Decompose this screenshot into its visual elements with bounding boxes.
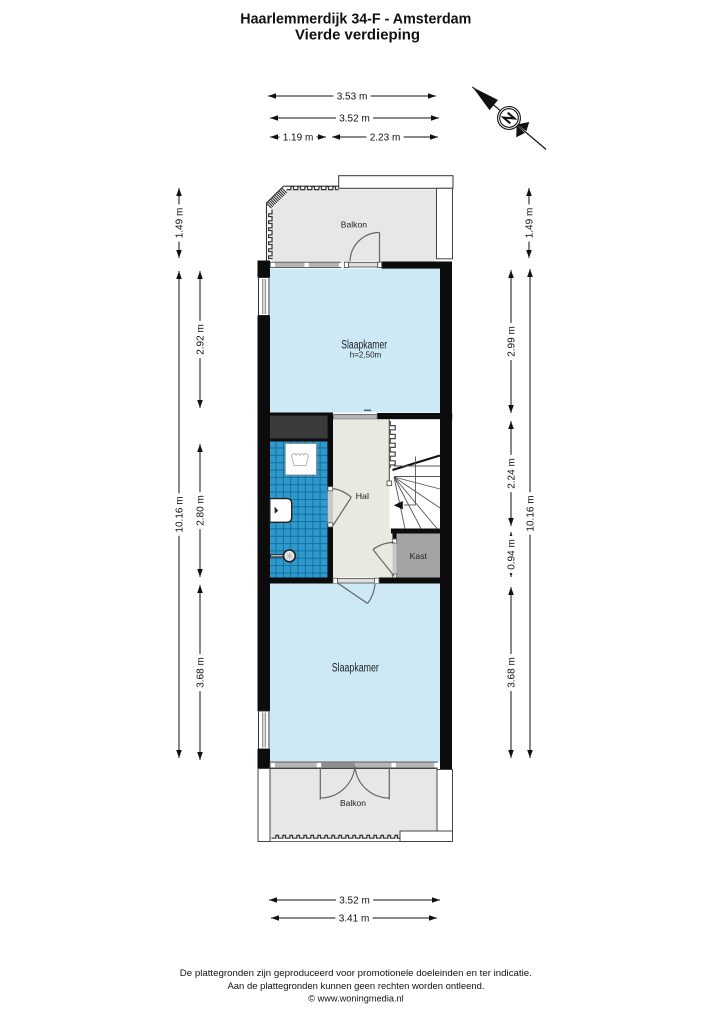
svg-text:Kast: Kast [410, 551, 428, 561]
svg-text:3.41 m: 3.41 m [339, 914, 370, 925]
svg-text:2.99 m: 2.99 m [507, 326, 518, 357]
svg-text:3.52 m: 3.52 m [339, 114, 370, 125]
svg-text:3.68 m: 3.68 m [507, 657, 518, 688]
svg-text:1.19 m: 1.19 m [283, 133, 314, 144]
svg-text:De plattegronden zijn geproduc: De plattegronden zijn geproduceerd voor … [180, 967, 532, 978]
svg-text:2.24 m: 2.24 m [507, 458, 518, 489]
svg-text:3.68 m: 3.68 m [196, 657, 207, 688]
svg-text:h=2,50m: h=2,50m [350, 350, 382, 359]
svg-text:Aan de plattegronden kunnen ge: Aan de plattegronden kunnen geen rechten… [228, 980, 485, 991]
svg-text:0.94 m: 0.94 m [507, 539, 518, 570]
svg-text:3.53 m: 3.53 m [337, 92, 368, 103]
svg-text:Balkon: Balkon [340, 798, 366, 808]
svg-text:Slaapkamer: Slaapkamer [332, 663, 379, 675]
svg-text:2.23 m: 2.23 m [370, 133, 401, 144]
svg-text:© www.woningmedia.nl: © www.woningmedia.nl [308, 994, 404, 1004]
svg-text:Hal: Hal [356, 491, 370, 501]
svg-text:2.92 m: 2.92 m [196, 324, 207, 355]
svg-text:2.80 m: 2.80 m [196, 495, 207, 526]
svg-text:10.16 m: 10.16 m [526, 495, 537, 531]
svg-text:Haarlemmerdijk 34-F - Amsterda: Haarlemmerdijk 34-F - Amsterdam [240, 11, 471, 28]
svg-text:1.49 m: 1.49 m [175, 208, 186, 239]
svg-text:3.52 m: 3.52 m [339, 896, 370, 907]
svg-text:Vierde verdieping: Vierde verdieping [295, 27, 420, 44]
svg-text:Balkon: Balkon [341, 219, 367, 229]
svg-text:1.49 m: 1.49 m [525, 208, 536, 239]
svg-text:10.16 m: 10.16 m [175, 496, 186, 532]
